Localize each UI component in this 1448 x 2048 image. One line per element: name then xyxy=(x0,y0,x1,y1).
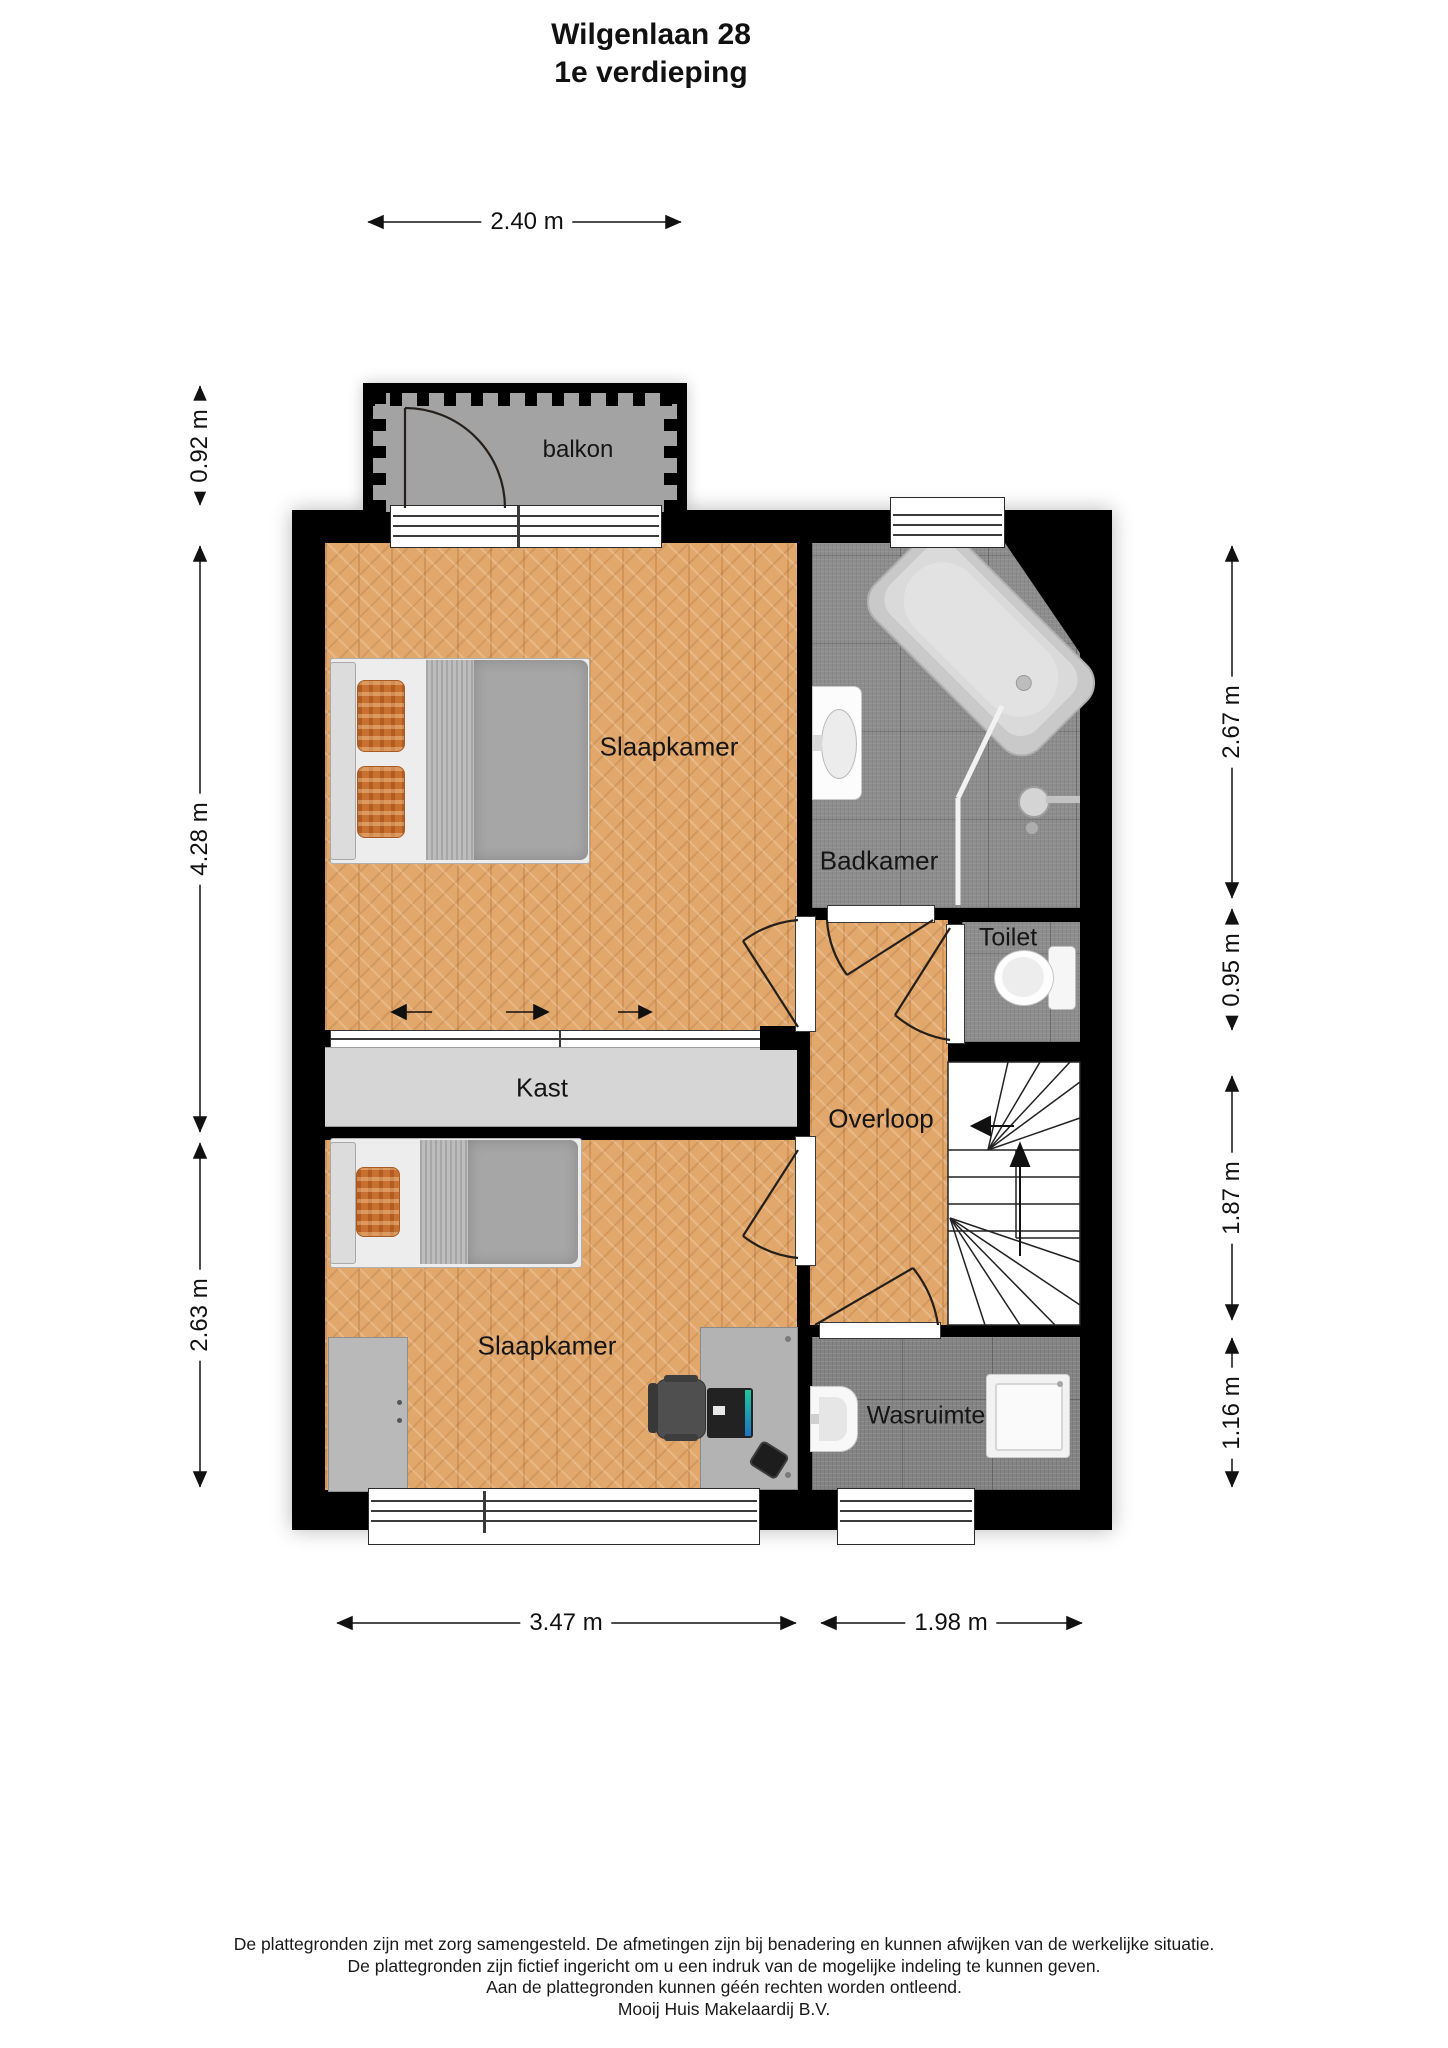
dim-right-badkamer: 2.67 m xyxy=(1218,676,1246,767)
room-label-slaapkamer-1: Slaapkamer xyxy=(600,732,739,763)
desk xyxy=(700,1327,798,1490)
bed-headboard xyxy=(330,662,356,860)
bathroom-sink xyxy=(812,686,862,800)
pillow xyxy=(356,1167,400,1237)
blanket-fold xyxy=(420,1140,468,1264)
balkon-railing-top xyxy=(363,383,687,393)
room-label-balkon: balkon xyxy=(543,436,614,464)
balkon-area xyxy=(363,383,687,512)
window-wasruimte xyxy=(837,1488,975,1545)
single-bed xyxy=(330,1138,580,1266)
room-label-badkamer: Badkamer xyxy=(820,846,939,877)
pillow xyxy=(357,766,405,838)
toilet-bowl xyxy=(994,950,1054,1006)
room-label-wasruimte: Wasruimte xyxy=(867,1402,986,1431)
room-label-kast: Kast xyxy=(516,1073,568,1104)
dim-right-stairs: 1.87 m xyxy=(1218,1152,1246,1243)
door-opening-toilet xyxy=(946,924,965,1044)
dim-left-lower: 2.63 m xyxy=(186,1269,214,1360)
dim-balkon-depth: 0.92 m xyxy=(186,400,214,491)
duvet xyxy=(468,1140,578,1264)
double-bed xyxy=(330,658,588,862)
balkon-railing-right-teeth xyxy=(664,383,677,512)
floor-stairs xyxy=(948,1062,1080,1325)
door-opening-wasruimte xyxy=(819,1322,941,1339)
page-title: Wilgenlaan 28 1e verdieping xyxy=(551,16,751,92)
disclaimer-line-1: De plattegronden zijn met zorg samengest… xyxy=(234,1934,1215,1956)
office-chair xyxy=(648,1375,704,1441)
room-label-slaapkamer-2: Slaapkamer xyxy=(478,1331,617,1362)
dim-left-upper: 4.28 m xyxy=(186,793,214,884)
dresser xyxy=(328,1337,408,1492)
shower-knob xyxy=(1026,822,1038,834)
room-label-overloop: Overloop xyxy=(828,1104,934,1135)
blanket-fold xyxy=(426,660,474,860)
washing-machine xyxy=(986,1374,1070,1458)
laptop xyxy=(707,1388,753,1438)
window-balkon-doorwall xyxy=(390,505,662,548)
title-address: Wilgenlaan 28 xyxy=(551,16,751,54)
dim-right-wasruimte: 1.16 m xyxy=(1218,1367,1246,1458)
dim-right-toilet: 0.95 m xyxy=(1218,924,1246,1015)
balkon-railing-top-teeth xyxy=(363,393,687,406)
door-opening-badkamer xyxy=(827,905,935,923)
dim-bottom-right: 1.98 m xyxy=(905,1609,996,1637)
wall-track-post xyxy=(760,1026,797,1050)
balkon-railing-left-teeth xyxy=(373,383,386,512)
duvet xyxy=(474,660,588,860)
dim-top-width: 2.40 m xyxy=(481,208,572,236)
title-floor: 1e verdieping xyxy=(551,54,751,92)
shower-rail xyxy=(1046,796,1080,803)
disclaimer-footer: De plattegronden zijn met zorg samengest… xyxy=(234,1934,1215,2020)
door-opening-slaapkamer-2 xyxy=(795,1136,816,1266)
disclaimer-line-2: De plattegronden zijn fictief ingericht … xyxy=(234,1956,1215,1978)
window-slaapkamer-2 xyxy=(368,1488,760,1545)
room-label-toilet: Toilet xyxy=(979,924,1037,953)
door-opening-slaapkamer-1 xyxy=(795,916,816,1032)
laundry-sink xyxy=(810,1386,858,1452)
dim-bottom-left: 3.47 m xyxy=(520,1609,611,1637)
disclaimer-line-4: Mooij Huis Makelaardij B.V. xyxy=(234,1999,1215,2021)
balkon-railing-left xyxy=(363,383,373,512)
disclaimer-line-3: Aan de plattegronden kunnen géén rechten… xyxy=(234,1977,1215,1999)
floorplan-page: Wilgenlaan 28 1e verdieping xyxy=(0,0,1448,2048)
pillow xyxy=(357,680,405,752)
balkon-railing-right xyxy=(677,383,687,512)
bed-headboard xyxy=(330,1142,356,1264)
window-badkamer xyxy=(890,497,1005,548)
phone xyxy=(748,1440,790,1481)
